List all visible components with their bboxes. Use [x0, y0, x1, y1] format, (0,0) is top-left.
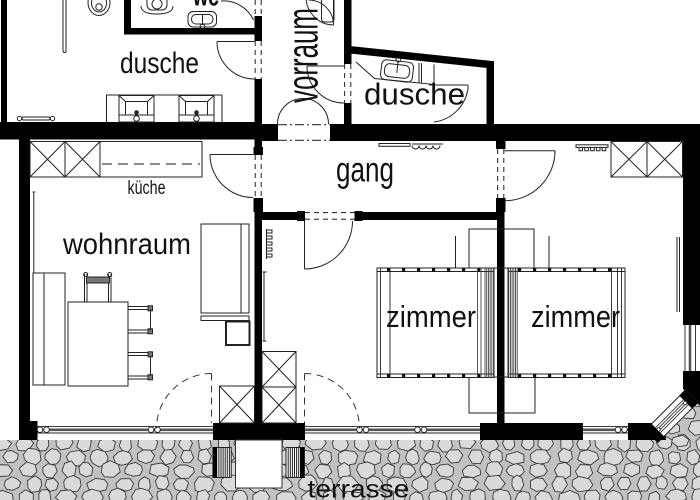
svg-text:zimmer: zimmer	[386, 299, 476, 334]
svg-text:wc: wc	[192, 0, 219, 12]
svg-text:küche: küche	[128, 178, 166, 199]
svg-text:dusche: dusche	[120, 47, 199, 80]
svg-text:dusche: dusche	[364, 77, 465, 112]
svg-text:gang: gang	[336, 151, 394, 190]
svg-text:terrasse: terrasse	[308, 476, 410, 500]
svg-text:vorraum: vorraum	[279, 8, 328, 103]
svg-text:wohnraum: wohnraum	[62, 228, 191, 261]
svg-text:zimmer: zimmer	[531, 299, 620, 334]
